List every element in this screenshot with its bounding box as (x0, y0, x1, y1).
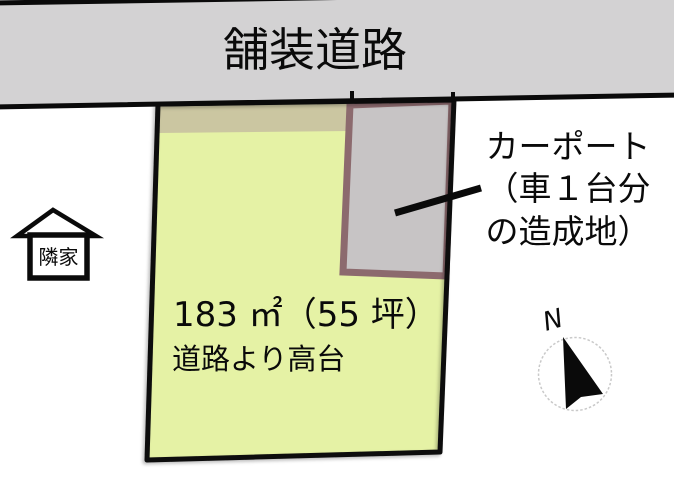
site-plan-diagram: 舗装道路 カーポート （車１台分 の造成地） 183 ㎡（55 坪） 道路より高… (0, 0, 674, 488)
compass-north-label: N (540, 304, 567, 338)
area-label: 183 ㎡（55 坪） (173, 295, 439, 335)
elevation-note-label: 道路より高台 (172, 342, 345, 376)
plot-top-strip (159, 103, 351, 133)
road-label: 舗装道路 (223, 23, 407, 77)
north-arrow-icon (563, 337, 603, 409)
site-plan-svg: 舗装道路 カーポート （車１台分 の造成地） 183 ㎡（55 坪） 道路より高… (0, 0, 674, 488)
neighbor-house-label: 隣家 (39, 245, 79, 269)
neighbor-house-icon: 隣家 (17, 210, 96, 278)
carport-label-line-2: （車１台分 (486, 169, 651, 208)
carport-label-line-3: の造成地） (486, 212, 651, 251)
carport-label-line-1: カーポート (486, 127, 651, 166)
house-roof-icon (17, 210, 96, 236)
compass: N (539, 304, 612, 411)
carport-area (343, 101, 452, 276)
